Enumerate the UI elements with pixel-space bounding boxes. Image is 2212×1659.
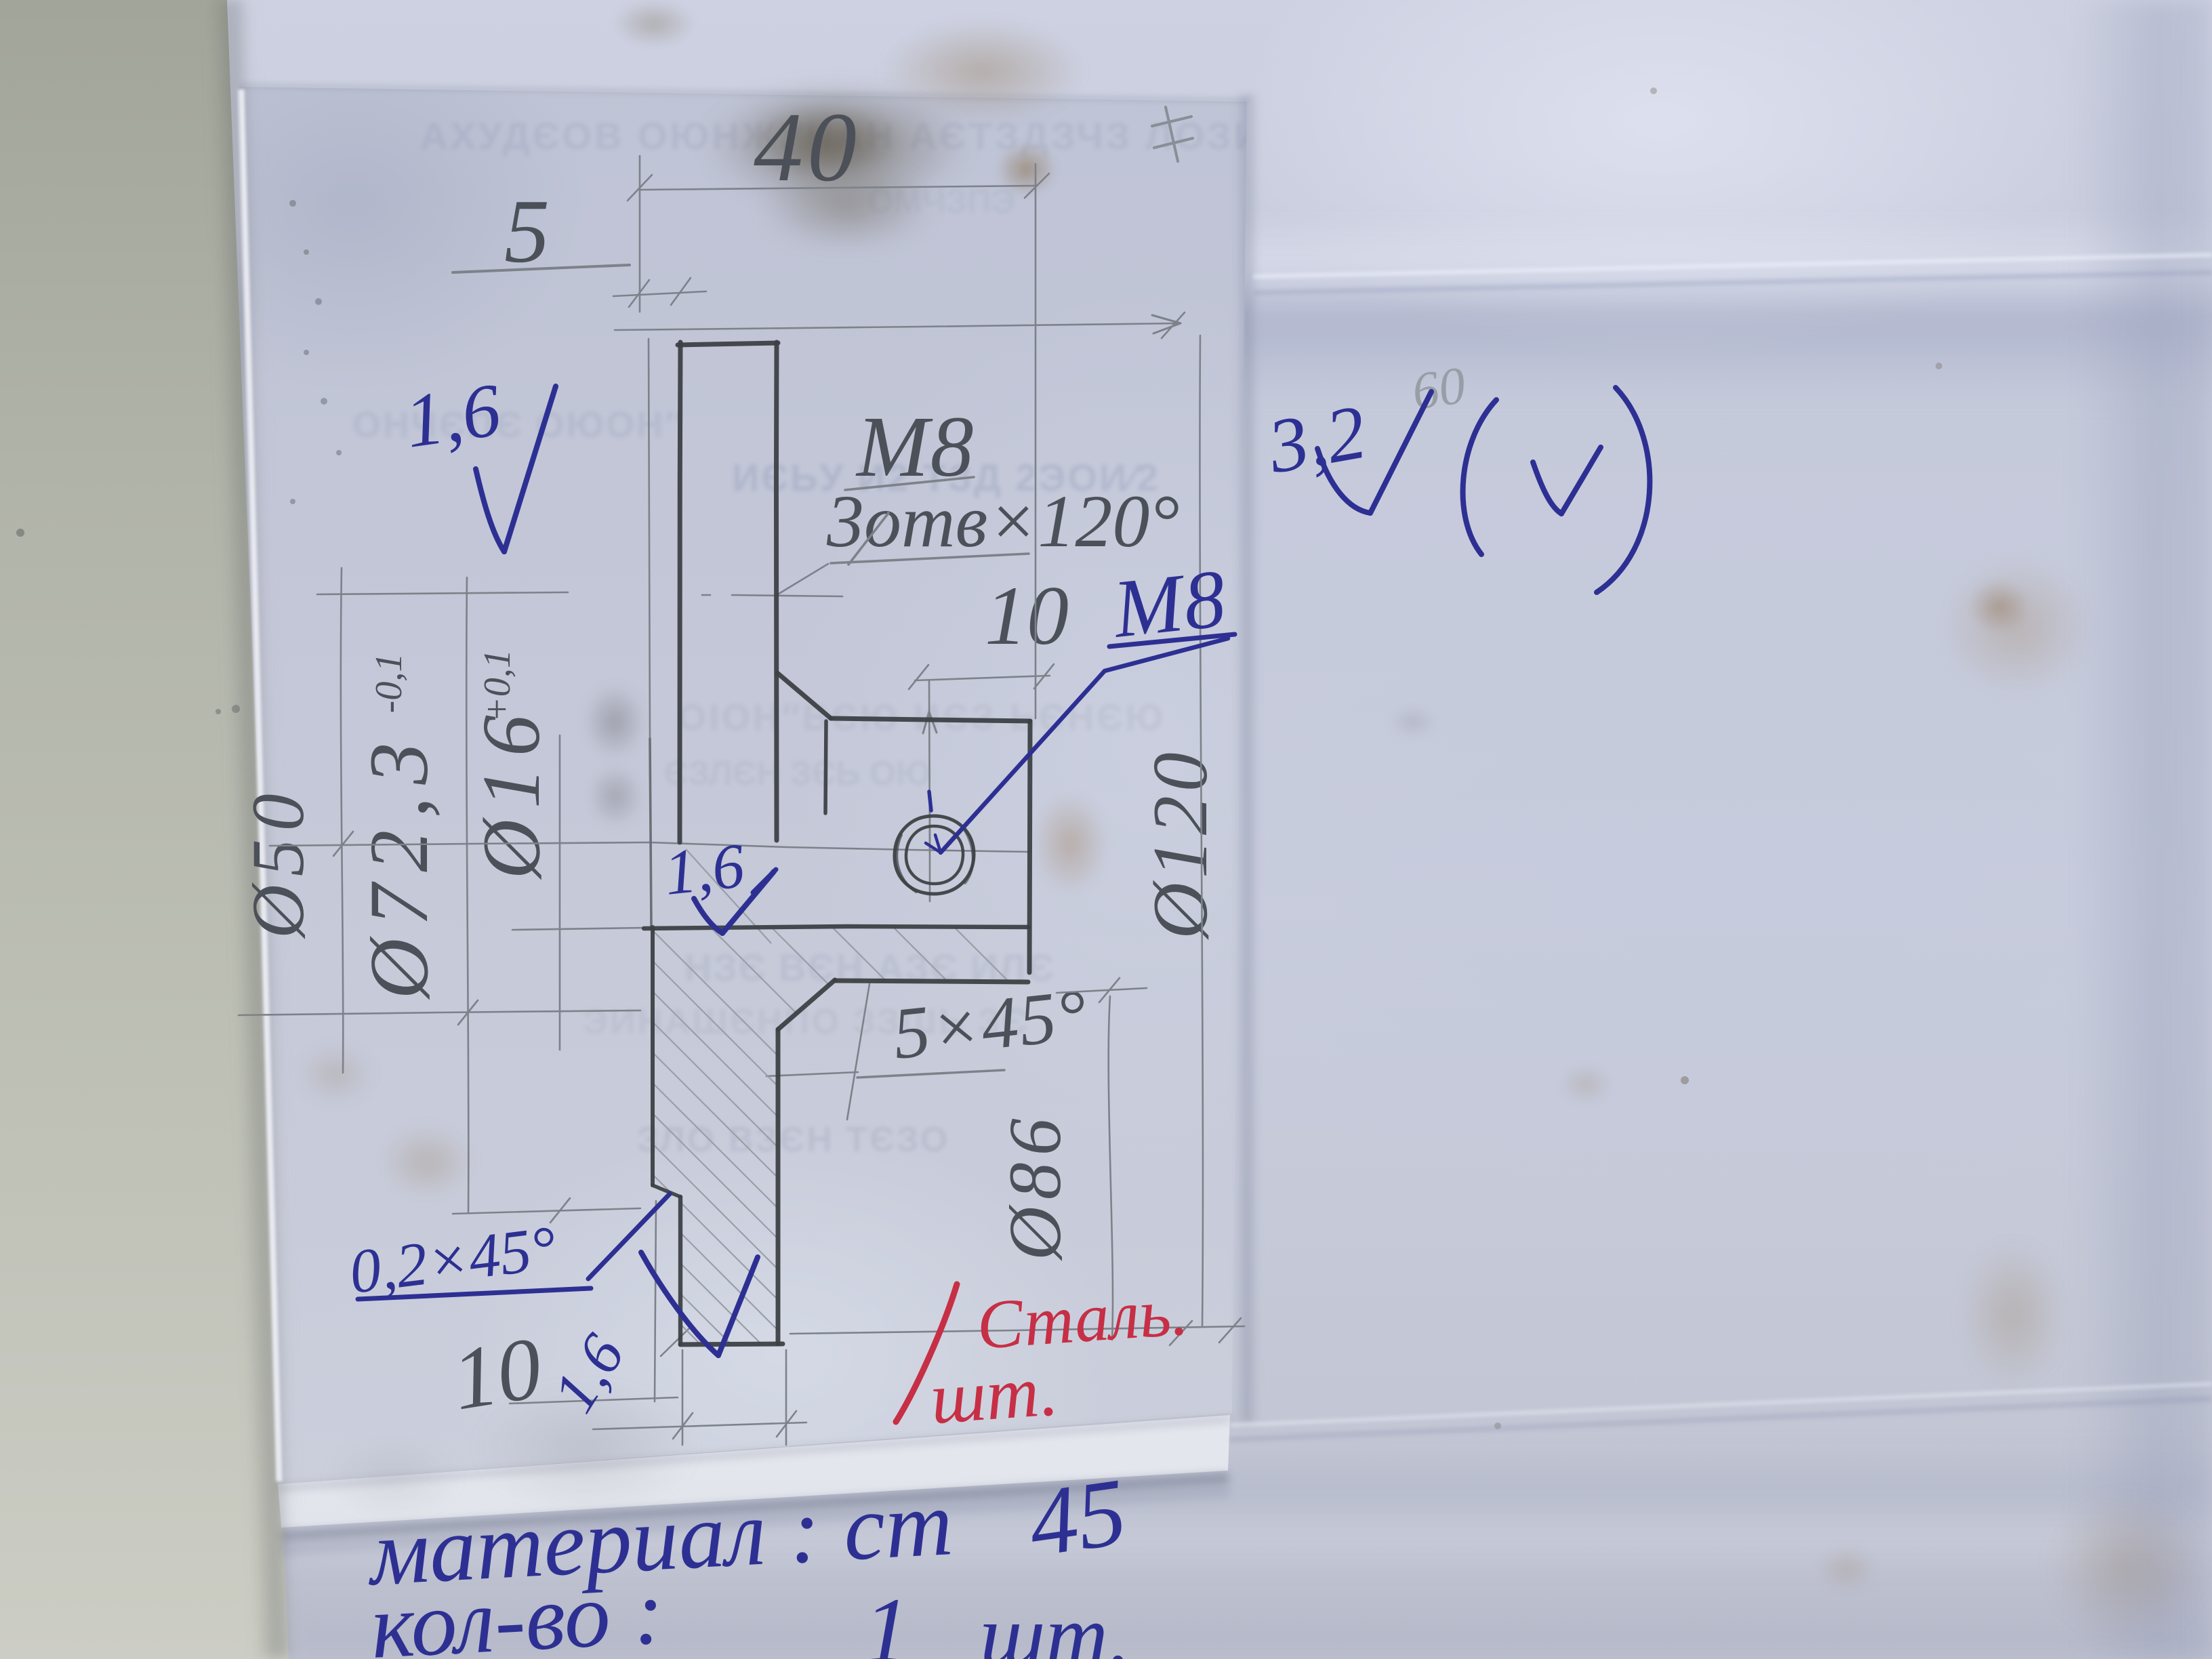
svg-text:1: 1 (863, 1578, 910, 1659)
svg-text:10: 10 (985, 569, 1069, 662)
svg-text:1,6: 1,6 (661, 830, 747, 909)
svg-text:+0,1: +0,1 (476, 649, 518, 722)
svg-text:Сталь.: Сталь. (975, 1273, 1191, 1364)
svg-text:-0,1: -0,1 (368, 653, 410, 714)
svg-text:60: 60 (1408, 355, 1469, 421)
svg-text:1,6: 1,6 (400, 367, 506, 464)
svg-text:М8: М8 (1108, 552, 1231, 655)
svg-text:шт.: шт. (928, 1350, 1061, 1439)
svg-text:Ø86: Ø86 (994, 1111, 1076, 1261)
svg-text:Ø120: Ø120 (1137, 748, 1224, 941)
svg-text:Ø50: Ø50 (237, 785, 319, 939)
svg-text:1,6: 1,6 (540, 1324, 638, 1424)
svg-text:кол-во :: кол-во : (369, 1561, 666, 1659)
svg-text:5: 5 (504, 181, 550, 281)
svg-text:Ø16: Ø16 (466, 704, 557, 880)
svg-text:3,2: 3,2 (1261, 388, 1372, 490)
svg-text:40: 40 (754, 92, 861, 202)
svg-text:Ø72,3: Ø72,3 (352, 731, 445, 1001)
svg-text:5×45°: 5×45° (889, 974, 1092, 1074)
svg-text:3отв×120°: 3отв×120° (826, 480, 1179, 562)
svg-text:10: 10 (446, 1319, 548, 1429)
svg-text:шт.: шт. (980, 1587, 1131, 1659)
svg-text:45: 45 (1022, 1457, 1132, 1576)
